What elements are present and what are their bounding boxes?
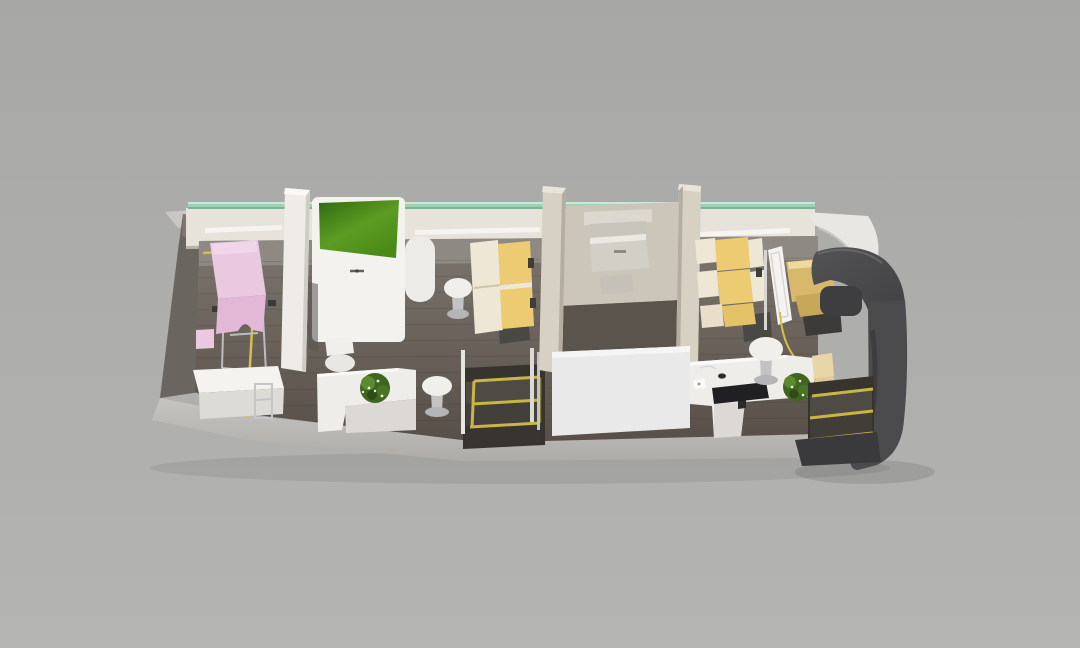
seat-cushion-2 [500, 286, 534, 329]
headrest-2 [697, 270, 719, 298]
cabinet-green-top [319, 200, 399, 258]
bus-cutaway-illustration [0, 0, 1080, 648]
exam-chair-footpad [196, 329, 214, 349]
mouse [718, 373, 726, 378]
window-glass-strip [188, 202, 815, 209]
seatback-2 [717, 269, 753, 305]
render-canvas [0, 0, 1080, 648]
side-bench [193, 366, 284, 419]
seatback-1 [715, 237, 750, 271]
dashboard [820, 286, 862, 316]
xray-lower-box [600, 274, 633, 295]
partition-wall [281, 188, 310, 372]
cabinet-side-pillar [405, 236, 435, 302]
headrest-1 [695, 238, 717, 264]
potted-plant-2 [783, 373, 811, 401]
potted-plant [360, 373, 390, 403]
double-passenger-seat [470, 240, 536, 344]
seat-cushion-1 [498, 241, 532, 285]
xray-room [539, 184, 701, 436]
xray-room-front-wall [552, 346, 690, 436]
